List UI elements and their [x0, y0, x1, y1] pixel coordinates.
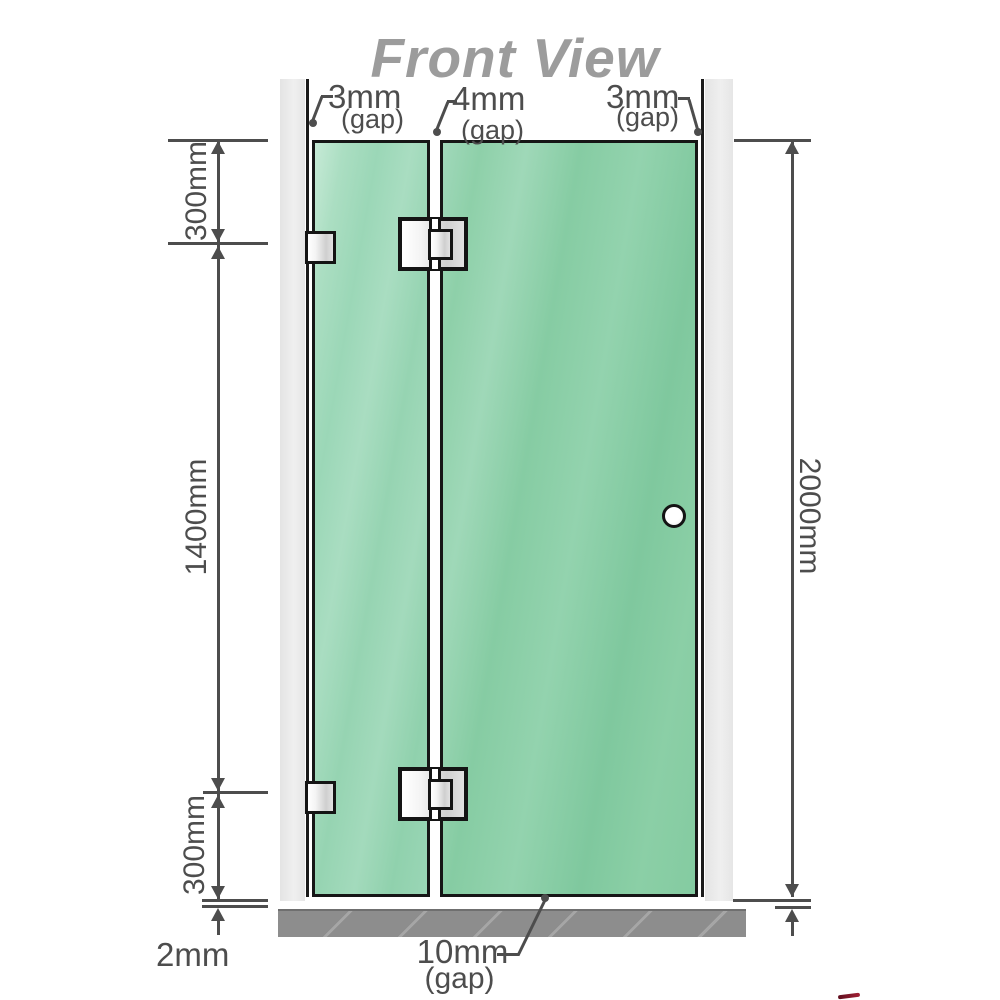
- tick-left-1400: [203, 791, 268, 794]
- arrowhead: [211, 778, 225, 791]
- arrowhead: [785, 909, 799, 922]
- leader-dot: [309, 119, 317, 127]
- arrowhead: [211, 908, 225, 921]
- arrowhead: [211, 795, 225, 808]
- leader-dot: [541, 894, 549, 902]
- dimension-label-2mm: 2mm: [156, 936, 229, 974]
- arrowhead: [211, 886, 225, 899]
- floor-base: [278, 909, 746, 937]
- wall-edge-line-left: [306, 79, 309, 897]
- wall-channel-right: [705, 79, 733, 901]
- tick-right-top: [734, 139, 811, 142]
- wall-edge-line-right: [701, 79, 704, 897]
- gap-sublabel-top-right: (gap): [616, 102, 679, 133]
- dimension-label-1400mm: 1400mm: [180, 437, 214, 597]
- watermark-fragment: [838, 993, 860, 1000]
- gap-sublabel-bottom: (gap): [412, 962, 507, 996]
- leader-line: [688, 99, 700, 132]
- tick-right-bottom-upper: [733, 899, 811, 902]
- wall-bracket-bottom: [305, 781, 336, 814]
- dim-line-right-below: [791, 921, 794, 936]
- gap-sublabel-top-middle: (gap): [461, 115, 524, 146]
- leader-dot: [694, 128, 702, 136]
- shower-screen-front-view-diagram: Front View 300mm 1400mm 300mm 2mm: [0, 0, 1000, 1000]
- dimension-label-bottom-300mm: 300mm: [178, 775, 212, 915]
- door-knob: [662, 504, 686, 528]
- dim-line-left-seg4: [217, 920, 220, 935]
- gap-label-top-middle: 4mm: [452, 80, 525, 118]
- wall-bracket-top: [305, 231, 336, 264]
- glass-panel-door: [440, 140, 698, 897]
- wall-channel-left: [280, 79, 305, 901]
- dimension-label-2000mm: 2000mm: [792, 436, 826, 596]
- hinge-top-clamp: [428, 229, 453, 260]
- gap-sublabel-top-left: (gap): [341, 104, 404, 135]
- dim-line-left-seg1: [217, 142, 220, 242]
- arrowhead: [785, 141, 799, 154]
- dim-line-left-seg3: [217, 794, 220, 899]
- leader-dot: [433, 128, 441, 136]
- arrowhead: [785, 884, 799, 897]
- dim-line-left-seg2: [217, 245, 220, 791]
- hinge-bottom-clamp: [428, 779, 453, 810]
- dimension-label-top-300mm: 300mm: [180, 121, 214, 261]
